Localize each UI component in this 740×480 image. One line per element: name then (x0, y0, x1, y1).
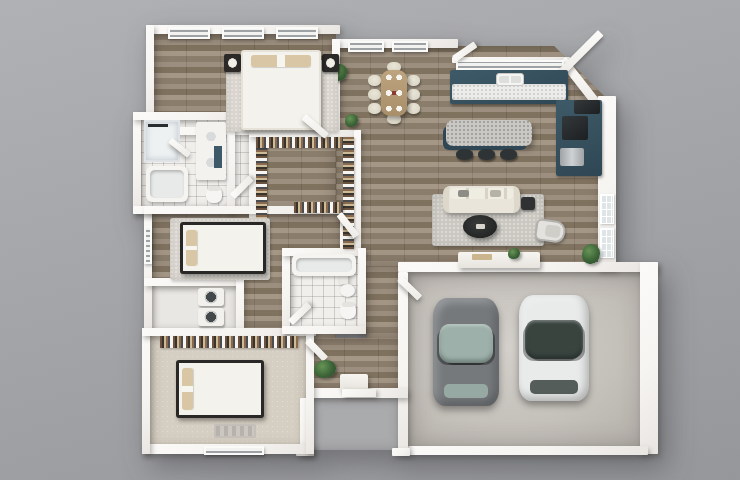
window-dining-2 (392, 41, 428, 52)
side-table (521, 197, 535, 210)
front-door (342, 389, 376, 397)
toilet (206, 186, 222, 203)
sofa (443, 186, 520, 213)
dining-chair-1 (368, 75, 381, 86)
car-white (519, 295, 589, 401)
bedroom3-mat (214, 424, 256, 438)
coffee-table (463, 215, 497, 238)
plant-entry (314, 360, 336, 378)
kitchen-counter-top (452, 84, 566, 100)
car-gray (433, 298, 499, 406)
patio-door-open (558, 30, 603, 75)
window-living-2 (600, 228, 614, 258)
nightstand-right (322, 54, 339, 72)
wall-porch-right-foot (392, 448, 410, 456)
floor-porch (312, 398, 400, 450)
dining-chair-3 (368, 103, 381, 114)
nightstand-left (224, 54, 241, 72)
oven (560, 148, 584, 166)
bathtub (146, 166, 188, 202)
floorplan (0, 0, 740, 480)
plant-hall-corner (345, 114, 358, 127)
wall-bath2-right (358, 248, 366, 334)
window-master-2 (222, 27, 264, 39)
vanity-accent (214, 146, 222, 168)
wall-master-left (146, 25, 154, 120)
wall-masterbath-left (133, 112, 141, 214)
closet-rack-mid (294, 202, 343, 213)
window-living-1 (600, 194, 614, 224)
window-dining-1 (348, 41, 384, 52)
window-kitchen (456, 60, 564, 70)
floor-hall-corridor (366, 266, 402, 338)
sink-pedestal (340, 284, 355, 297)
window-bedroom2 (144, 226, 152, 264)
bedroom2-bed (180, 222, 266, 274)
washer (198, 288, 224, 306)
wall-garage-right (640, 262, 658, 454)
dining-chair-6 (407, 103, 420, 114)
window-master-1 (168, 27, 210, 39)
window-bedroom3 (204, 446, 264, 455)
refrigerator (574, 100, 600, 114)
wall-garage-left (398, 272, 408, 454)
kitchen-sink (496, 73, 524, 86)
island-stool-2 (478, 149, 495, 160)
wall-bath2-bottom (282, 326, 366, 334)
dryer (198, 308, 224, 326)
island-stool-3 (500, 149, 517, 160)
dining-chair-4 (407, 75, 420, 86)
wall-bedroom2-left (144, 206, 152, 332)
bedroom3-bed (176, 360, 264, 418)
dining-chair-5 (407, 89, 420, 100)
plant-console (508, 248, 520, 259)
media-console (458, 252, 540, 268)
wall-bedroom3-left (142, 328, 150, 454)
console-decor (472, 254, 492, 260)
entry-console (340, 374, 368, 390)
floorplan-3d-render (0, 0, 740, 480)
toilet2 (340, 302, 356, 319)
stove-cooktop (562, 116, 588, 140)
kitchen-island (446, 120, 532, 146)
island-stool-1 (456, 149, 473, 160)
window-master-3 (276, 27, 318, 39)
accent-chair (534, 218, 567, 244)
wall-garage-bottom (408, 446, 648, 455)
plant-living-corner (582, 244, 600, 264)
bedroom3-closet-rack (160, 336, 298, 348)
closet-rack-top (256, 137, 352, 148)
dining-table (381, 70, 407, 116)
bathtub2 (292, 254, 356, 276)
dining-chair-2 (368, 89, 381, 100)
